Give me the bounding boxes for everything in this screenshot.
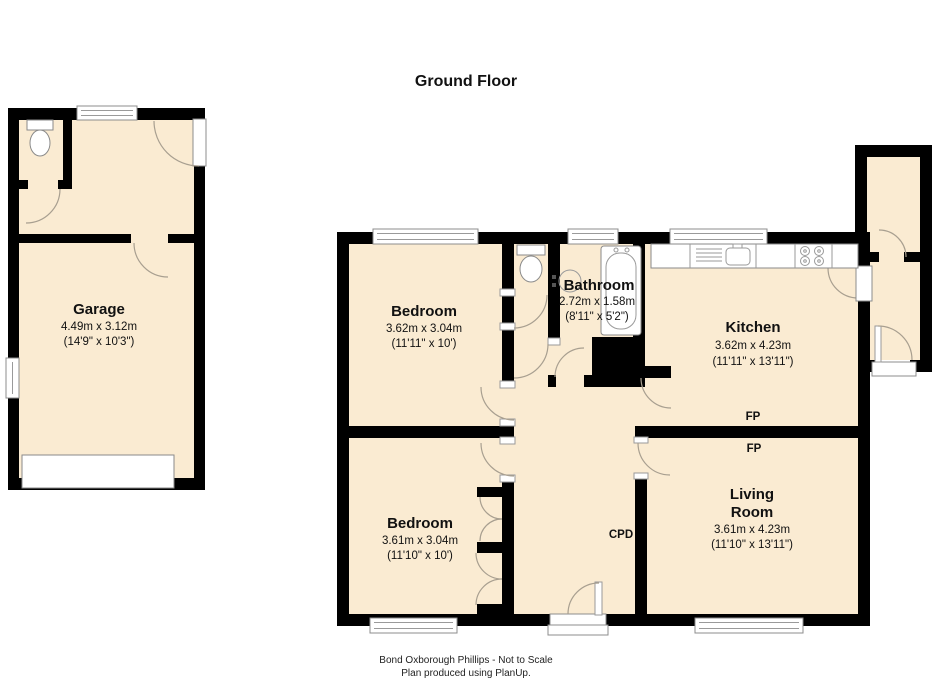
room-name: Bedroom <box>391 303 457 320</box>
room-imperial: (11'10" x 13'11") <box>711 539 793 551</box>
floorplan-svg: Ground Floor Garage 4.49m x 3.12m (14'9"… <box>0 0 938 683</box>
door-jamb <box>548 338 560 345</box>
room-metric: 3.61m x 3.04m <box>382 535 458 547</box>
fireplace-label-kitchen: FP <box>746 411 761 423</box>
door-leaf <box>595 582 602 615</box>
room-name: Kitchen <box>725 319 780 336</box>
garage-door <box>22 455 174 488</box>
wall <box>635 426 870 438</box>
bedroom-top-label: Bedroom 3.62m x 3.04m (11'11" x 10') <box>386 303 462 350</box>
wall <box>635 479 647 614</box>
door-jamb <box>634 473 648 479</box>
wall <box>63 119 72 186</box>
door-jamb <box>500 323 515 330</box>
room-name: Bathroom <box>564 277 635 294</box>
room-imperial: (11'11" x 13'11") <box>713 356 794 368</box>
wall <box>855 145 867 244</box>
door-opening <box>856 266 872 301</box>
wall <box>19 180 28 189</box>
wall <box>867 252 879 262</box>
room-metric: 2.72m x 1.58m <box>559 296 635 308</box>
door-jamb <box>500 437 515 444</box>
window <box>670 229 767 244</box>
room-metric: 4.49m x 3.12m <box>61 321 137 333</box>
door-threshold <box>548 625 608 635</box>
floorplan-page: Ground Floor Garage 4.49m x 3.12m (14'9"… <box>0 0 938 683</box>
wall <box>477 604 514 614</box>
kitchen-counter <box>651 244 858 268</box>
wall <box>337 232 349 626</box>
wall <box>584 375 592 387</box>
window <box>77 106 137 120</box>
fireplace-label-living: FP <box>747 443 762 455</box>
window <box>373 229 478 244</box>
window <box>695 618 803 633</box>
wall <box>19 234 131 243</box>
wall <box>548 244 560 344</box>
footer-line-1: Bond Oxborough Phillips - Not to Scale <box>379 655 553 666</box>
door-opening <box>193 119 206 166</box>
room-name: Living <box>730 486 774 503</box>
airing-cupboard-block <box>592 337 645 387</box>
room-metric: 3.62m x 4.23m <box>715 340 791 352</box>
room-imperial: (11'11" x 10') <box>392 338 457 350</box>
window <box>370 618 457 633</box>
room-metric: 3.62m x 3.04m <box>386 323 462 335</box>
window <box>568 229 618 244</box>
room-name: Room <box>731 504 774 521</box>
wall <box>502 244 514 387</box>
room-metric: 3.61m x 4.23m <box>714 524 790 536</box>
room-name: Bedroom <box>387 515 453 532</box>
wall <box>477 487 514 497</box>
wall <box>168 234 194 243</box>
door-jamb <box>500 381 515 388</box>
bedroom-bottom-label: Bedroom 3.61m x 3.04m (11'10" x 10') <box>382 515 458 562</box>
door-threshold <box>872 362 916 376</box>
wall <box>477 542 514 553</box>
room-imperial: (8'11" x 5'2") <box>565 311 629 323</box>
garage-floor <box>19 119 194 479</box>
page-title: Ground Floor <box>415 73 517 90</box>
counter <box>651 244 858 268</box>
wall <box>904 252 932 262</box>
footer-line-2: Plan produced using PlanUp. <box>401 668 531 679</box>
wall <box>349 426 514 438</box>
wall <box>8 108 19 490</box>
bathroom-label: Bathroom 2.72m x 1.58m (8'11" x 5'2") <box>559 277 635 323</box>
door-jamb <box>500 289 515 296</box>
wall <box>645 366 671 378</box>
door-opening <box>550 614 606 626</box>
wall <box>58 180 72 189</box>
room-imperial: (11'10" x 10') <box>387 550 453 562</box>
room-imperial: (14'9" x 10'3") <box>64 336 135 348</box>
door-leaf <box>875 326 881 362</box>
room-name: Garage <box>73 301 125 318</box>
door-jamb <box>634 437 648 443</box>
cupboard-label: CPD <box>609 529 633 541</box>
